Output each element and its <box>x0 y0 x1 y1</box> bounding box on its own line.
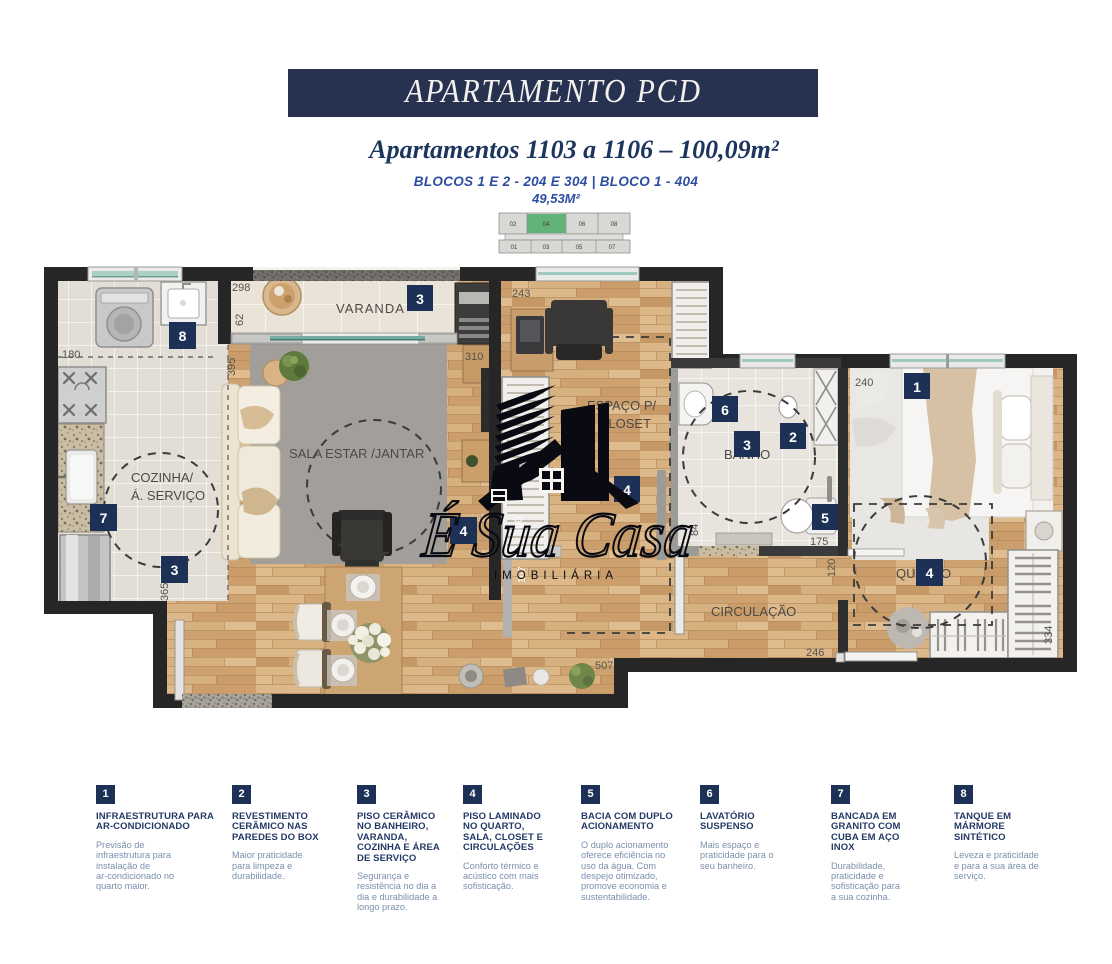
svg-text:507: 507 <box>595 660 613 672</box>
svg-text:01: 01 <box>511 245 518 251</box>
svg-text:5: 5 <box>821 510 829 526</box>
svg-text:120: 120 <box>826 559 838 577</box>
svg-text:3: 3 <box>416 291 424 307</box>
svg-text:COZINHA/: COZINHA/ <box>131 470 194 485</box>
svg-text:06: 06 <box>579 222 586 228</box>
svg-text:3: 3 <box>171 562 179 578</box>
svg-text:240: 240 <box>855 377 873 389</box>
svg-text:08: 08 <box>611 222 618 228</box>
svg-text:175: 175 <box>810 536 828 548</box>
svg-text:07: 07 <box>609 245 616 251</box>
svg-text:CIRCULAÇÃO: CIRCULAÇÃO <box>711 604 796 619</box>
svg-text:04: 04 <box>543 222 550 228</box>
svg-text:1: 1 <box>913 379 921 395</box>
svg-text:310: 310 <box>465 351 483 363</box>
svg-text:62: 62 <box>234 314 246 326</box>
svg-text:4: 4 <box>926 565 934 581</box>
svg-text:7: 7 <box>100 510 108 526</box>
svg-text:8: 8 <box>179 328 187 344</box>
svg-text:VARANDA: VARANDA <box>336 301 405 316</box>
svg-text:3: 3 <box>743 437 751 453</box>
svg-text:180: 180 <box>62 349 80 361</box>
svg-text:IMOBILIÁRIA: IMOBILIÁRIA <box>494 569 618 582</box>
svg-text:298: 298 <box>232 282 250 294</box>
svg-text:243: 243 <box>512 288 530 300</box>
svg-text:05: 05 <box>576 245 583 251</box>
svg-text:395: 395 <box>226 358 238 376</box>
svg-text:Á. SERVIÇO: Á. SERVIÇO <box>131 488 205 503</box>
svg-text:SALA ESTAR /JANTAR: SALA ESTAR /JANTAR <box>289 446 424 461</box>
svg-text:6: 6 <box>721 402 729 418</box>
svg-text:246: 246 <box>806 647 824 659</box>
svg-text:02: 02 <box>510 222 517 228</box>
svg-text:ESPAÇO P/: ESPAÇO P/ <box>587 398 657 413</box>
svg-text:03: 03 <box>543 245 550 251</box>
svg-text:365: 365 <box>159 583 171 601</box>
svg-text:2: 2 <box>789 429 797 445</box>
svg-text:334: 334 <box>1043 626 1055 644</box>
svg-text:É Sua Casa: É Sua Casa <box>419 499 697 570</box>
